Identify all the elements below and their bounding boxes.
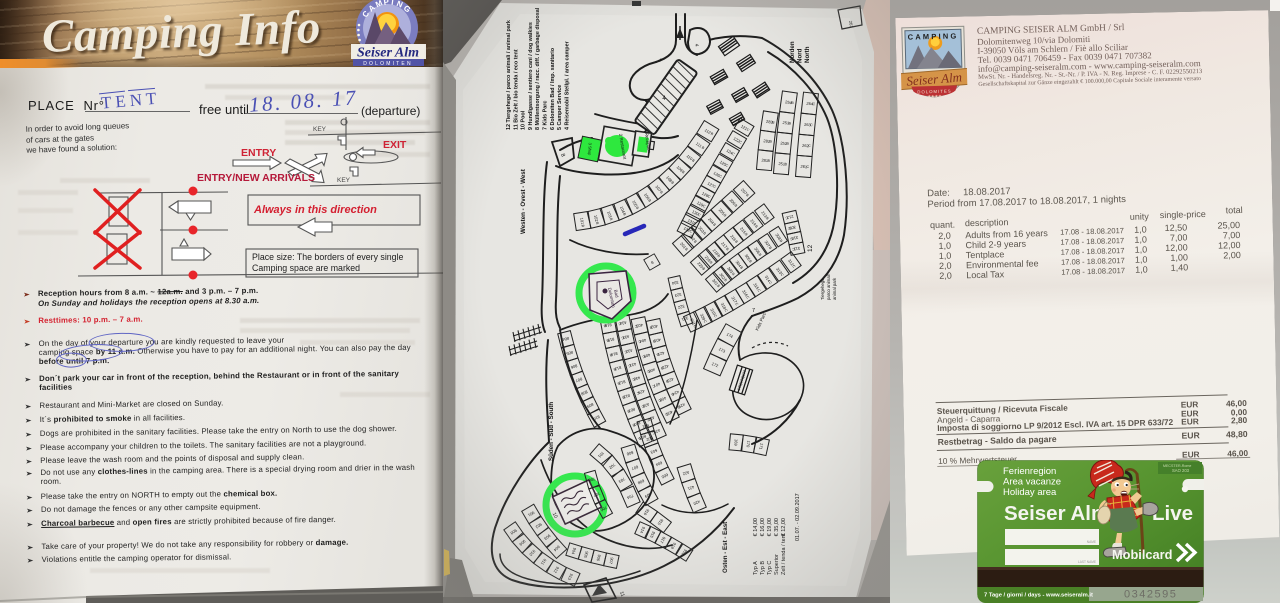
svg-text:Area vacanze: Area vacanze [1003,477,1061,488]
svg-text:7 Tage / giorni / days - www: 7 Tage / giorni / days - www.seiseralm.i… [984,593,1093,599]
svg-text:Holiday area: Holiday area [1003,487,1057,498]
svg-text:NAME: NAME [1087,540,1096,544]
svg-text:LAST NAME: LAST NAME [1078,560,1096,564]
svg-text:Ferienregion: Ferienregion [1003,466,1056,477]
svg-text:Live: Live [1152,502,1193,525]
svg-text:SAO 203: SAO 203 [1172,468,1190,473]
svg-text:0342595: 0342595 [1124,589,1177,601]
svg-text:Mobilcard: Mobilcard [1112,547,1172,562]
svg-text:Seiser Alm: Seiser Alm [1004,502,1109,525]
